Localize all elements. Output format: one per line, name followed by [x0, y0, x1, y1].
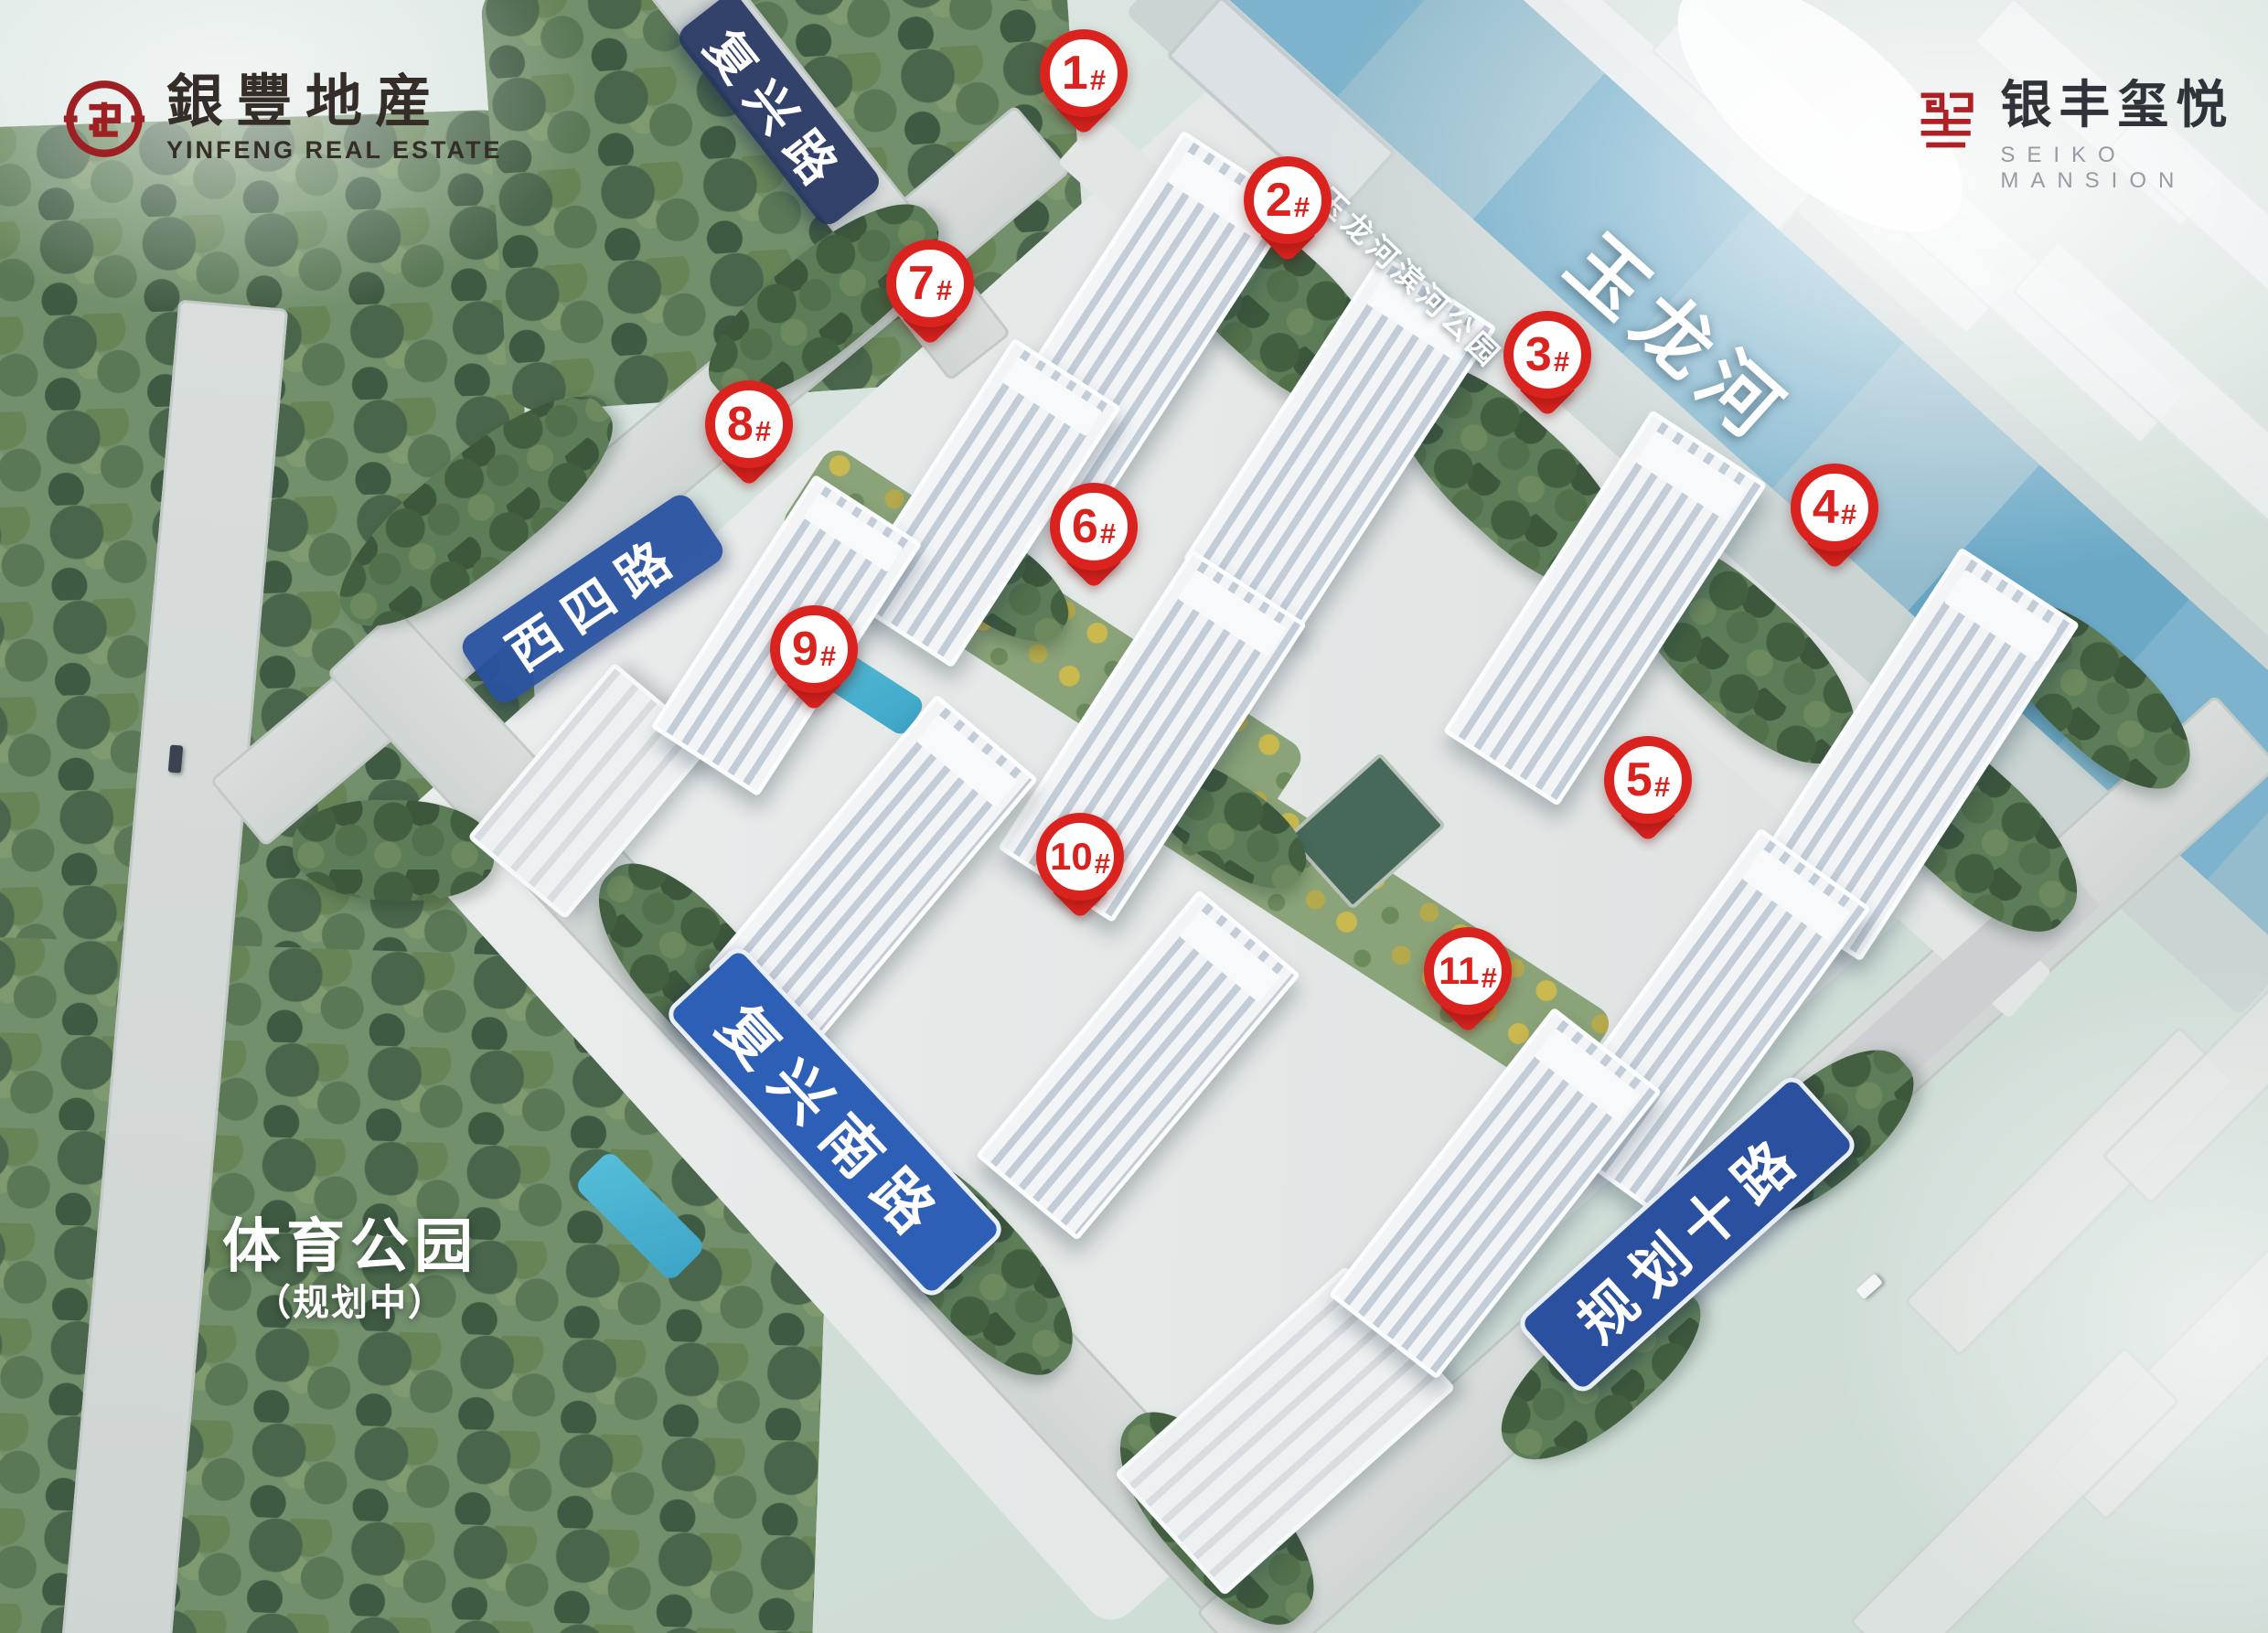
marker-hash: # [1654, 773, 1670, 801]
marker-hash: # [1294, 193, 1310, 221]
seiko-mansion-mark-icon [1913, 79, 1978, 159]
building-marker-10[interactable]: 10# [1036, 813, 1124, 912]
building-marker-1[interactable]: 1# [1040, 29, 1128, 128]
developer-logo: 銀豐地産 YINFENG REAL ESTATE [62, 73, 503, 165]
marker-circle: 2# [1244, 156, 1332, 244]
marker-hash: # [1841, 500, 1856, 528]
sports-park-title: 体育公园 [209, 1200, 492, 1284]
marker-hash: # [755, 417, 771, 445]
marker-number: 6 [1072, 503, 1098, 550]
building-marker-9[interactable]: 9# [770, 605, 858, 704]
marker-circle: 4# [1791, 464, 1878, 551]
marker-circle: 10# [1036, 813, 1124, 901]
building-marker-7[interactable]: 7# [886, 240, 974, 338]
marker-number: 11 [1439, 952, 1479, 990]
marker-circle: 9# [770, 605, 858, 693]
yinfeng-seal-icon [62, 77, 146, 161]
developer-name-en: YINFENG REAL ESTATE [166, 136, 503, 165]
building-marker-5[interactable]: 5# [1604, 736, 1692, 835]
car [168, 744, 184, 773]
building-marker-8[interactable]: 8# [705, 380, 793, 479]
building-marker-4[interactable]: 4# [1791, 464, 1878, 562]
sports-park-status: （规划中） [209, 1273, 492, 1326]
car [1856, 1273, 1883, 1299]
tree-grove [293, 800, 494, 901]
building-marker-11[interactable]: 11# [1424, 927, 1512, 1026]
project-logo: 银丰玺悦 SEIKO MANSION [1913, 79, 2268, 194]
marker-number: 7 [908, 260, 935, 307]
marker-number: 8 [727, 400, 754, 448]
marker-circle: 5# [1604, 736, 1692, 824]
marker-hash: # [1482, 964, 1497, 992]
masterplan-rendering: 复兴路 西四路 复兴南路 规划十路 玉龙河 玉龙河滨河公园 体育公园 （规划中）… [0, 0, 2268, 1633]
marker-number: 2 [1266, 176, 1292, 224]
marker-number: 10 [1050, 838, 1093, 876]
marker-circle: 11# [1424, 927, 1512, 1015]
marker-hash: # [820, 642, 836, 670]
marker-number: 4 [1813, 484, 1839, 531]
developer-name-cn: 銀豐地産 [166, 73, 503, 133]
marker-circle: 6# [1050, 483, 1138, 571]
building-marker-3[interactable]: 3# [1503, 311, 1591, 410]
marker-number: 3 [1525, 331, 1552, 379]
building-marker-6[interactable]: 6# [1050, 483, 1138, 582]
marker-hash: # [1100, 519, 1116, 548]
marker-number: 1 [1062, 49, 1088, 97]
project-name-en: SEIKO MANSION [2000, 143, 2268, 194]
marker-circle: 3# [1503, 311, 1591, 399]
marker-number: 9 [792, 625, 818, 673]
marker-hash: # [936, 276, 952, 304]
marker-hash: # [1095, 849, 1110, 878]
building-marker-2[interactable]: 2# [1244, 156, 1332, 255]
marker-circle: 7# [886, 240, 974, 327]
marker-circle: 8# [705, 380, 793, 468]
marker-number: 5 [1626, 756, 1653, 804]
marker-circle: 1# [1040, 29, 1128, 117]
marker-hash: # [1090, 66, 1106, 94]
project-name-cn: 银丰玺悦 [2000, 79, 2268, 135]
marker-hash: # [1554, 347, 1569, 376]
